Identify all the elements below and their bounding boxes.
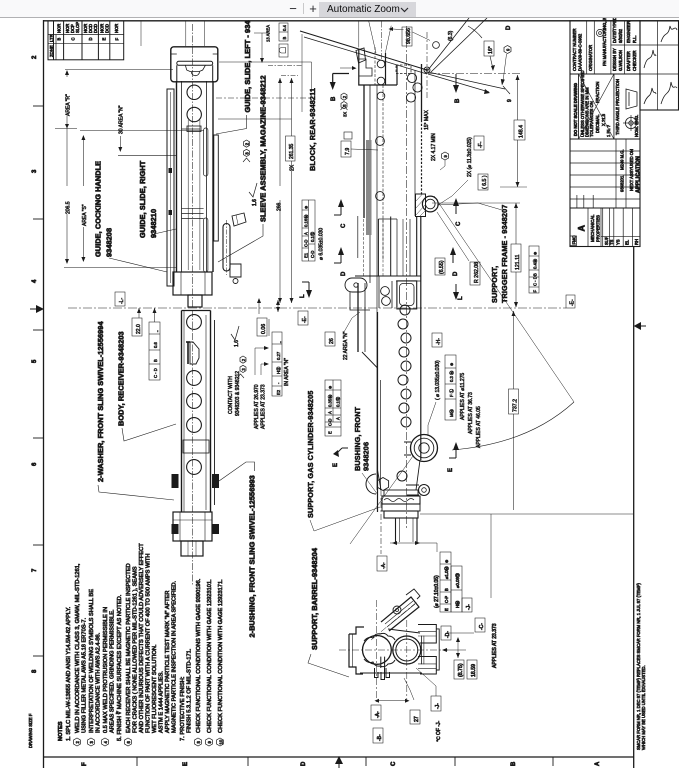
svg-text:9348201: 9348201 [620,175,625,192]
svg-text:7: 7 [32,568,38,572]
svg-text:-A-: -A- [375,711,381,718]
svg-text:THIRD ANGLE PROJECTION: THIRD ANGLE PROJECTION [615,79,620,135]
svg-text:G.WILSON: G.WILSON [618,50,623,71]
svg-text:3: 3 [245,152,250,155]
svg-text:AREA "S": AREA "S" [82,204,88,226]
svg-text:-H-: -H- [436,338,442,345]
svg-text:0.06: 0.06 [261,324,267,334]
svg-text:-: - [276,382,281,384]
svg-text:D: D [301,761,307,766]
svg-text:2X 4.17 MIN: 2X 4.17 MIN [431,133,437,161]
svg-text:3: 3 [342,104,347,107]
svg-text:FOR CRACKS ( NONE ALLOWED PER: FOR CRACKS ( NONE ALLOWED PER MIL-STD-12… [133,566,139,733]
svg-text:6: 6 [126,741,131,744]
svg-text:B: B [444,588,449,591]
svg-text:A: A [304,232,309,235]
svg-text:-F-: -F- [478,141,484,148]
svg-text:ENGINEER: ENGINEER [626,21,631,43]
svg-text:R.L.: R.L. [632,35,637,43]
svg-text:5. FINISH ∛ MACHINE SURFACES: 5. FINISH ∛ MACHINE SURFACES EXCEPT AS N… [116,594,123,741]
svg-text:CHECK FUNCTIONAL CONDITION WIT: CHECK FUNCTIONAL CONDITION WITH GAGE 129… [218,579,224,733]
svg-text:E: E [102,38,107,41]
svg-text:( 6.5 ): ( 6.5 ) [482,175,488,189]
svg-text:4: 4 [103,741,108,744]
svg-text:BLOCK, REAR-9348211: BLOCK, REAR-9348211 [308,88,317,171]
svg-text:APPLIES AT 23.373: APPLIES AT 23.373 [492,623,498,668]
svg-text:1. SPLC MIL-W-13855 AND ANSI: 1. SPLC MIL-W-13855 AND ANSI Y14.5M-82 A… [66,606,72,741]
svg-text:2: 2 [241,358,246,361]
svg-text:206.5: 206.5 [66,201,72,214]
svg-text:148.4: 148.4 [519,125,525,138]
svg-text:(⌀ 27.10±0.05): (⌀ 27.10±0.05) [434,575,440,608]
svg-text:3: 3 [89,741,94,744]
svg-text:C: C [341,223,347,228]
svg-text:3: 3 [32,169,38,173]
svg-text:TOLERANCES ON: TOLERANCES ON [589,101,594,137]
svg-text:EACH RECEIVER SHALL BE MAGNETI: EACH RECEIVER SHALL BE MAGNETIC PARTICLE… [126,563,132,733]
svg-text:R 262.08: R 262.08 [474,262,480,283]
svg-text:C - D: C - D [153,368,158,378]
svg-text:B: B [455,98,461,103]
svg-text:0.4: 0.4 [282,25,287,31]
svg-text:⊕: ⊕ [304,205,309,209]
svg-text:WELD IN ACCORDANCE WITH CLASS: WELD IN ACCORDANCE WITH CLASS 3, GMAW, M… [75,563,81,733]
svg-text:C-D: C-D [310,251,315,258]
svg-text:9/30/92: 9/30/92 [618,28,623,43]
svg-text:℃ OF -J-: ℃ OF -J- [436,720,442,742]
svg-text:SUPPORT,: SUPPORT, [490,266,499,303]
svg-text:ORIGINATOR: ORIGINATOR [588,45,593,71]
svg-text:-L-: -L- [119,298,125,304]
svg-text:DECIMAL: DECIMAL [595,114,600,133]
svg-text:⌀1.0Ⓜ: ⌀1.0Ⓜ [443,566,450,579]
svg-text:APPLIES AT 23.373: APPLIES AT 23.373 [261,384,267,429]
svg-text:E: E [328,431,333,434]
svg-text:EL: EL [625,239,630,245]
svg-text:FMC: FMC [572,235,577,244]
svg-text:C-D: C-D [328,419,333,426]
svg-text:SUPPORT, BARREL-9348204: SUPPORT, BARREL-9348204 [310,547,319,650]
svg-text:D: D [88,37,93,40]
svg-text:L: L [458,296,464,300]
svg-text:C: C [391,761,397,766]
svg-text:9: 9 [207,741,212,744]
svg-text:F: F [115,38,120,41]
svg-text:AREAS SPECIFIED. GRINDING PERM: AREAS SPECIFIED. GRINDING PERMISSIBLE. [110,609,116,733]
svg-text:27: 27 [414,716,420,722]
svg-text:FINISH 5.3.1.2 OF MIL-STD-171.: FINISH 5.3.1.2 OF MIL-STD-171. [187,648,193,733]
svg-text:⎵: ⎵ [153,330,158,332]
svg-text:9: 9 [507,99,513,102]
svg-text:DRAFTER: DRAFTER [626,51,631,71]
svg-text:13 AREA: 13 AREA [266,25,271,42]
svg-text:8: 8 [32,669,38,673]
svg-text:F: F [533,290,538,293]
svg-text:D: D [506,25,512,30]
svg-text:18.59: 18.59 [471,664,477,677]
svg-text:15° MAX: 15° MAX [424,110,430,130]
svg-text:0.27: 0.27 [276,351,281,360]
svg-text:IN AREA "N": IN AREA "N" [284,358,290,386]
svg-text:D: D [453,271,459,276]
svg-text:-A-: -A- [381,562,387,569]
svg-text:261.35: 261.35 [289,143,295,159]
svg-text:-E-: -E- [302,316,308,323]
svg-text:5: 5 [32,359,38,363]
svg-text:DAAA09-89-C-0982: DAAA09-89-C-0982 [578,33,583,71]
svg-text:E1: E1 [304,252,309,258]
svg-text:APPLICATION: APPLICATION [636,156,642,193]
svg-text:2: 2 [342,95,347,98]
svg-text:PROPERTIES: PROPERTIES [596,215,601,242]
svg-text:2X: 2X [290,164,296,171]
svg-text:1.6: 1.6 [234,340,240,347]
svg-text:NOM. ENG.: NOM. ENG. [634,115,639,137]
svg-text:HⓂ: HⓂ [454,600,461,608]
svg-text:APPLIES AT ⌀11.275: APPLIES AT ⌀11.275 [460,373,466,420]
svg-text:A: A [595,761,601,766]
svg-text:0.35Ⓜ: 0.35Ⓜ [327,394,334,407]
svg-text:9348206: 9348206 [362,442,371,471]
svg-text:9348203 & 9348212: 9348203 & 9348212 [235,371,241,416]
svg-text:737.2: 737.2 [513,399,519,412]
svg-text:C: C [456,221,462,226]
svg-text:SLOP: SLOP [75,22,80,33]
svg-text:A: A [328,411,333,414]
svg-text:CHECK FUNCTIONAL CONDITION WIT: CHECK FUNCTIONAL CONDITION WITH GAGE 129… [207,579,213,733]
svg-text:DCD: DCD [93,24,98,33]
svg-text:16°: 16° [488,46,494,54]
svg-text:NOR: NOR [114,24,119,33]
svg-text:-D-: -D- [445,631,451,638]
svg-text:22.0: 22.0 [136,324,142,334]
svg-text:LTR: LTR [49,34,54,42]
svg-text:MⓂ: MⓂ [448,409,455,417]
svg-text:M249 M.G.: M249 M.G. [620,149,625,170]
svg-text:-E-: -E- [570,299,576,306]
svg-text:F Ⓛ: F Ⓛ [448,388,455,397]
svg-text:B: B [331,96,337,101]
svg-text:CHECKER: CHECKER [632,51,637,71]
svg-text:2: 2 [75,741,80,744]
svg-text:SLEEVE ASSEMBLY, MAGAZINE-9348: SLEEVE ASSEMBLY, MAGAZINE-9348212 [259,75,268,222]
svg-text:(6.55): (6.55) [439,260,445,274]
svg-text:⊕: ⊕ [533,251,538,255]
svg-text:0.5 MAX WELD PROTRUSION PERMIS: 0.5 MAX WELD PROTRUSION PERMISSIBLE IN [103,607,109,733]
svg-text:DCD: DCD [105,24,110,33]
svg-text:⌀0.08Ⓠ: ⌀0.08Ⓠ [454,572,461,588]
svg-text:C: C [71,37,76,40]
svg-text:B: B [282,37,287,40]
svg-text:L: L [300,294,306,298]
svg-text:TS: TS [609,239,614,245]
svg-text:DRAWING SIZE F: DRAWING SIZE F [28,713,33,748]
svg-text:MAGNETIC PARTICLE INSPECTION I: MAGNETIC PARTICLE INSPECTION IN AREA SPE… [172,580,178,733]
svg-text:BODY, RECEIVER-9348203: BODY, RECEIVER-9348203 [117,331,126,426]
svg-text:7. PROTECTIVE FINISH:: 7. PROTECTIVE FINISH: [180,676,186,741]
svg-text:E: E [183,762,189,766]
svg-text:ASTM E 1444 APPLIES.: ASTM E 1444 APPLIES. [159,671,165,733]
svg-text:IN ACCORDANCE WITH AWS A2.4-86: IN ACCORDANCE WITH AWS A2.4-86. [96,632,102,733]
svg-text:0.1Ⓠ: 0.1Ⓠ [309,231,316,242]
svg-text:CHECK FUNCTIONAL CONDITIONS WI: CHECK FUNCTIONAL CONDITIONS WITH GAGE 93… [196,578,202,733]
svg-text:26: 26 [329,338,335,344]
svg-text:RH: RH [634,239,639,245]
svg-text:GUIDE, SLIDE, RIGHT: GUIDE, SLIDE, RIGHT [138,160,147,238]
svg-text:-C-: -C- [479,623,485,630]
svg-text:CONTACT WITH: CONTACT WITH [228,376,234,414]
svg-text:0.4Ⓜ: 0.4Ⓜ [532,258,539,269]
svg-text:-J-: -J- [466,604,472,610]
svg-text:9348208: 9348208 [105,228,114,257]
svg-text:HⓈ: HⓈ [275,366,282,374]
svg-text:USING FILLER METAL AWS A5.18 E: USING FILLER METAL AWS A5.18 ER70S-7. [82,617,88,733]
svg-text:B: B [57,38,62,41]
svg-text:2-BUSHING, FRONT SLING SWIVEL-: 2-BUSHING, FRONT SLING SWIVEL-12556993 [248,475,257,637]
svg-text:1 PL ?: 1 PL ? [606,124,611,137]
svg-text:C - D: C - D [533,276,538,286]
svg-text:6: 6 [32,462,38,466]
svg-text:AND OTHER INJURIOUS DEFECTS TH: AND OTHER INJURIOUS DEFECTS THAT COULD A… [139,543,145,733]
svg-text:1.6: 1.6 [252,199,258,206]
svg-text:8: 8 [196,741,201,744]
svg-text:9: 9 [443,155,448,158]
svg-text:⌀ 6.035±0.030: ⌀ 6.035±0.030 [319,228,325,260]
svg-text:-J-: -J- [435,703,441,709]
svg-text:0.1Ⓠ: 0.1Ⓠ [335,396,342,407]
svg-text:A: A [577,225,587,232]
svg-text:X ?1.5: X ?1.5 [601,113,606,126]
svg-text:2: 2 [32,55,38,59]
svg-text:DESIGN BY: DESIGN BY [612,48,617,71]
svg-text:YS: YS [616,239,621,245]
svg-text:B: B [511,761,517,766]
svg-text:CONTRACT NUMBER: CONTRACT NUMBER [572,29,577,72]
svg-text:AREA "R": AREA "R" [66,94,72,116]
svg-text:2-WASHER, FRONT SLING SWIVEL-1: 2-WASHER, FRONT SLING SWIVEL-12556994 [96,321,105,482]
svg-text:D: D [341,271,347,276]
svg-text:0.16Ⓜ: 0.16Ⓜ [303,214,310,227]
svg-text:98.656: 98.656 [406,28,412,44]
svg-text:2X (⌀ 11.3±0.025): 2X (⌀ 11.3±0.025) [467,137,473,177]
svg-text:GUIDE, SLIDE, LEFT - 934: GUIDE, SLIDE, LEFT - 934 [243,20,252,113]
svg-text:(8.75): (8.75) [458,663,464,677]
svg-text:ZONE: ZONE [49,45,54,57]
svg-text:E: E [333,463,339,467]
svg-text:MECHANICAL: MECHANICAL [590,214,595,242]
svg-text:F: F [82,762,88,766]
svg-text:DATE/TYPED: DATE/TYPED [612,18,617,43]
svg-text:E2: E2 [276,389,281,395]
svg-text:WHICH MAY BE USED UNTIL EXHAUS: WHICH MAY BE USED UNTIL EXHAUSTED. [641,665,646,750]
svg-text:SUPPORT, GAS CYLINDER-9348205: SUPPORT, GAS CYLINDER-9348205 [306,391,315,518]
svg-text:A: A [336,417,341,420]
svg-text:266: 266 [277,202,283,211]
svg-text:9: 9 [506,48,511,51]
svg-text:NEXT ASSY: NEXT ASSY [629,168,634,191]
svg-text:WET FLUORESCENT SOLUTION.: WET FLUORESCENT SOLUTION. [152,644,158,733]
svg-text:( ⌀ 13.035±0.030): ( ⌀ 13.035±0.030) [435,360,441,400]
svg-text:30 AREA "N": 30 AREA "N" [119,105,125,134]
svg-text:⊕: ⊕ [449,362,454,366]
svg-text:FUNCTION OF PART WITH A CURREN: FUNCTION OF PART WITH A CURRENT OF 400 T… [146,554,152,734]
svg-text:NOTES: NOTES [58,721,64,741]
svg-text:USED ON: USED ON [629,149,634,168]
svg-text:3X: 3X [343,112,348,117]
svg-text:0.3 Ⓜ: 0.3 Ⓜ [448,370,455,382]
svg-text:7.9: 7.9 [345,148,351,155]
svg-text:B: B [153,359,158,362]
svg-text:E: E [444,608,449,611]
svg-text:3: 3 [241,368,246,371]
svg-text:⎵: ⎵ [276,341,281,343]
svg-text:-B-: -B- [377,734,383,741]
svg-text:⊕: ⊕ [328,385,333,389]
svg-text:121.11: 121.11 [515,254,521,270]
svg-text:APPLY MAGNETIC PARTICLE TEST M: APPLY MAGNETIC PARTICLE TEST MARK "M" AF… [165,591,171,733]
svg-text:E: E [448,468,454,472]
svg-text:C-D: C-D [304,240,309,247]
svg-text:INTERPRETATION OF WELDING SYMB: INTERPRETATION OF WELDING SYMBOLS SHALL … [89,589,95,733]
svg-text:FN MANUFACTURING, IN: FN MANUFACTURING, IN [602,18,607,66]
svg-text:NOR: NOR [57,24,62,33]
svg-text:2: 2 [245,142,250,145]
svg-text:APPLIES AT 36.73: APPLIES AT 36.73 [468,392,474,434]
svg-text:TRIGGER FRAME - 9348207: TRIGGER FRAME - 9348207 [500,205,509,303]
svg-text:10: 10 [219,739,224,744]
svg-text:22 AREA "N": 22 AREA "N" [343,331,349,360]
svg-text:FRACTION: FRACTION [595,82,600,103]
svg-text:APPLIES AT 26.970: APPLIES AT 26.970 [254,384,260,429]
svg-text:APPLIES AT 46.05: APPLIES AT 46.05 [476,406,482,448]
svg-text:B: B [533,273,538,276]
svg-text:GUIDE, COCKING HANDLE: GUIDE, COCKING HANDLE [94,161,103,257]
svg-text:⊕: ⊕ [444,559,449,563]
svg-text:DO NOT SCALE DRAWING: DO NOT SCALE DRAWING [573,83,578,136]
svg-text:4: 4 [32,279,38,283]
svg-text:C-P: C-P [444,596,449,603]
svg-text:0.6: 0.6 [153,342,158,348]
svg-text:(6.3): (6.3) [448,30,454,41]
